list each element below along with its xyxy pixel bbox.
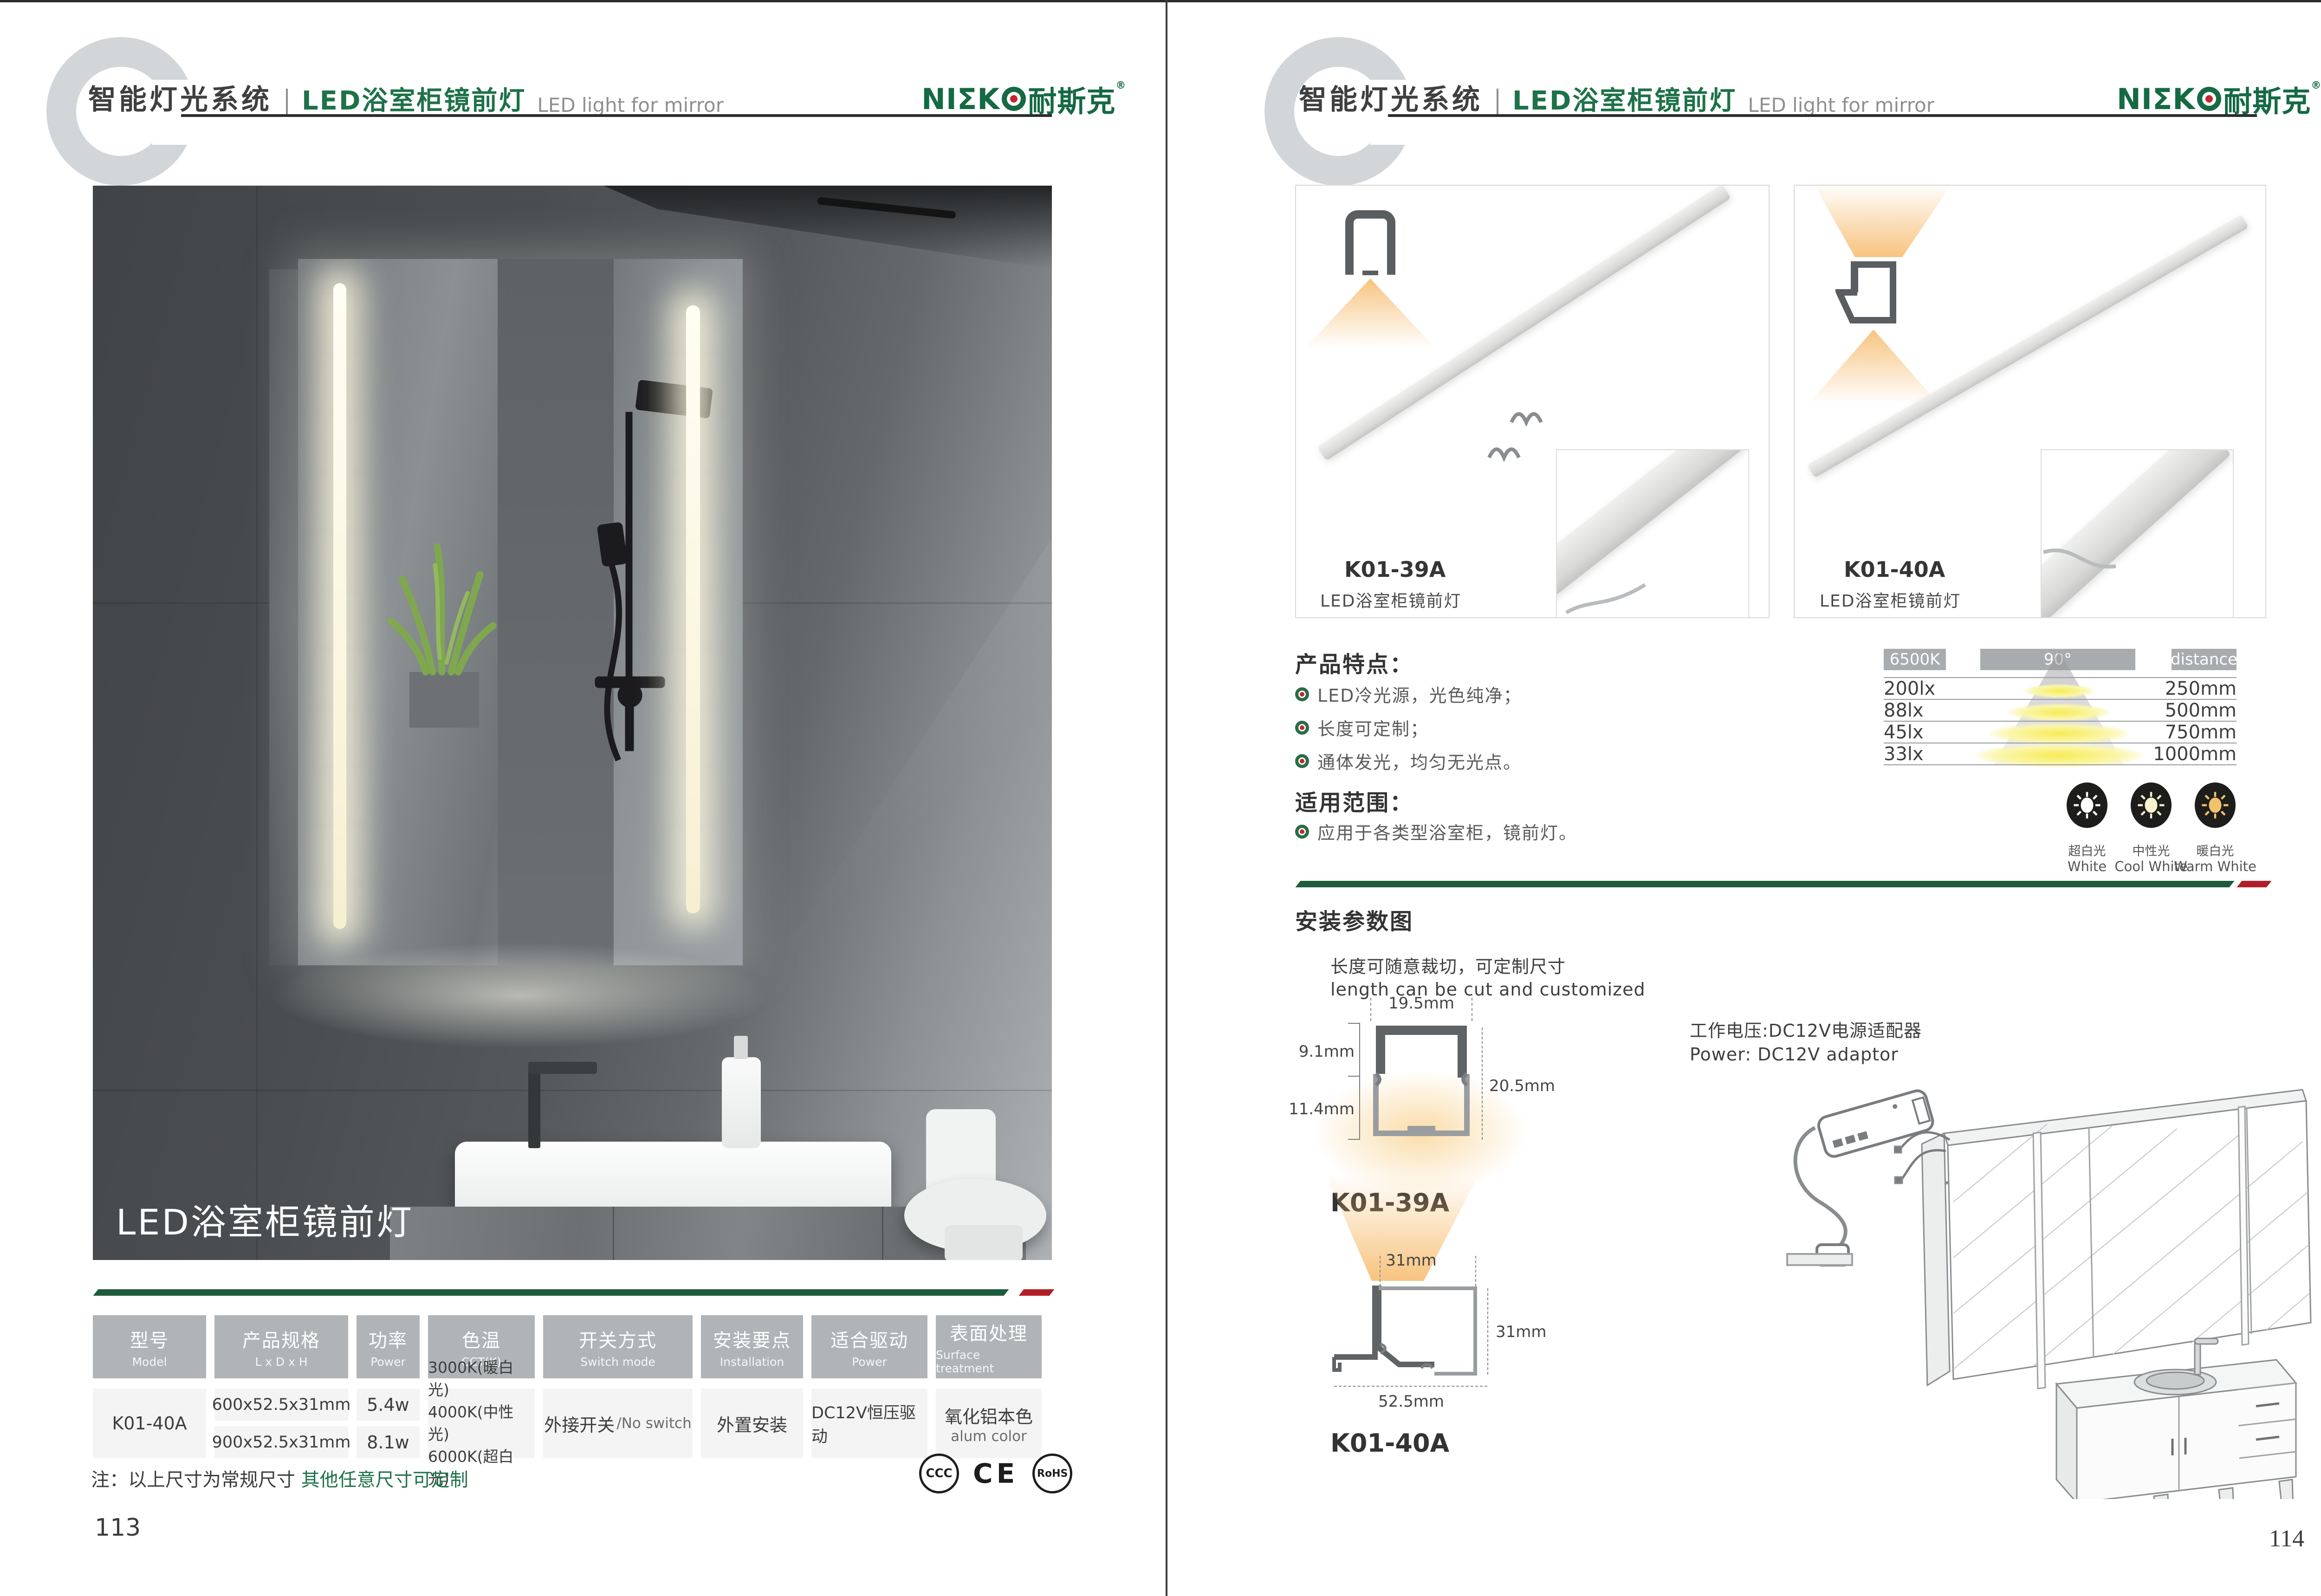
catalog-spread: 智能灯光系统 LED浴室柜镜前灯 LED light for mirror NI… xyxy=(0,0,2321,1596)
spec-value: 900x52.5x31mm xyxy=(214,1426,348,1458)
power-54: 5.4w xyxy=(367,1395,409,1415)
led-strip-right xyxy=(686,305,700,913)
dim-right: 20.5mm xyxy=(1489,1077,1555,1095)
accent-line-red xyxy=(1019,1289,1055,1296)
cell-driver: DC12V恒压驱动 xyxy=(811,1389,927,1458)
accent-line-green xyxy=(93,1289,1009,1296)
cell-switch: 外接开关 /No switch xyxy=(543,1389,693,1458)
col-header-driver: 适合驱动Power xyxy=(811,1315,927,1378)
surface-en: alum color xyxy=(951,1428,1027,1445)
nisko-logo: NIΣK 耐斯克 ® xyxy=(2117,78,2321,120)
switch-en: /No switch xyxy=(616,1415,691,1432)
dim-bottom: 52.5mm xyxy=(1365,1392,1458,1411)
header-main: 适合驱动 xyxy=(830,1325,908,1352)
cert-icons: CCC CE RoHS xyxy=(919,1454,1072,1493)
lux-label: 200lx xyxy=(1884,678,1935,699)
bullet-dot-icon xyxy=(1300,692,1304,697)
accent-line-green xyxy=(1296,881,2235,887)
page-header: 智能灯光系统 LED浴室柜镜前灯 LED light for mirror xyxy=(1299,77,1934,117)
faucet-icon xyxy=(528,1062,540,1148)
header-main: 开关方式 xyxy=(579,1325,657,1352)
features-title: 产品特点： xyxy=(1295,646,1413,678)
nisko-logo: NIΣK 耐斯克 ® xyxy=(921,78,1126,120)
dim-guide xyxy=(1348,1076,1360,1077)
dim-guide xyxy=(1482,1027,1483,1140)
col-header-switch: 开关方式Switch mode xyxy=(543,1315,693,1378)
header-sub: Installation xyxy=(720,1355,784,1369)
profile-section-icon xyxy=(1340,210,1400,279)
accent-line-red xyxy=(2237,881,2272,887)
feature-text: 长度可定制； xyxy=(1317,715,1429,740)
feature-text: LED冷光源，光色纯净； xyxy=(1317,681,1522,707)
light-glow xyxy=(1809,330,1938,404)
power-81: 8.1w xyxy=(367,1432,409,1453)
driver-value: DC12V恒压驱动 xyxy=(811,1400,927,1447)
lux-label: 45lx xyxy=(1884,722,1924,743)
top-rule xyxy=(0,0,2321,2)
power-note-cn: 工作电压:DC12V电源适配器 xyxy=(1690,1016,1922,1042)
mirror-cabinet-side xyxy=(269,269,298,965)
header-product-en: LED light for mirror xyxy=(537,94,724,116)
distance-label: 250mm xyxy=(2097,678,2237,699)
header-sub: Power xyxy=(852,1355,887,1369)
header-rule xyxy=(1388,114,2257,117)
scope-text: 应用于各类型浴室柜，镜前灯。 xyxy=(1317,819,1577,844)
cct-label-en: Warm White xyxy=(2171,859,2259,874)
header-sub: Power xyxy=(370,1355,406,1369)
profile1-section xyxy=(1370,1022,1472,1141)
soap-pump-icon xyxy=(734,1036,748,1059)
cut-note-cn: 长度可随意裁切，可定制尺寸 xyxy=(1330,952,1566,978)
nisko-logo-cn: 耐斯克 xyxy=(2223,78,2311,120)
rohs-mark-icon: RoHS xyxy=(1032,1454,1072,1493)
spec-value: 600x52.5x31mm xyxy=(214,1389,348,1421)
feature-bullet-icon xyxy=(1295,825,1309,839)
nisko-logo-left: NIΣK xyxy=(2117,82,2195,116)
dim-guide xyxy=(1370,998,1371,1021)
dim-guide xyxy=(1475,1256,1476,1286)
rohs-text: RoHS xyxy=(1037,1468,1068,1480)
cell-install: 外置安装 xyxy=(701,1389,803,1458)
lux-label: 33lx xyxy=(1884,743,1924,765)
col-header-install: 安装要点Installation xyxy=(701,1315,803,1378)
dim-guide xyxy=(1380,1256,1381,1286)
header-sub: Switch mode xyxy=(580,1355,655,1369)
header-sub: Model xyxy=(132,1355,167,1369)
distance-label: 1000mm xyxy=(2097,743,2237,765)
feature-item: 长度可定制； xyxy=(1295,715,1429,740)
dim-guide xyxy=(1472,998,1472,1021)
feature-item: 通体发光，均匀无光点。 xyxy=(1295,748,1522,774)
spec-table-data-row: K01-40A 600x52.5x31mm 900x52.5x31mm 5.4w… xyxy=(93,1389,1049,1458)
cct-cool-white-icon xyxy=(2131,782,2172,828)
product-model: K01-40A xyxy=(1844,557,1945,582)
size-note: 注：以上尺寸为常规尺寸 其他任意尺寸可定制 xyxy=(91,1465,468,1492)
feature-bullet-icon xyxy=(1295,754,1309,768)
header-sub: L x D x H xyxy=(255,1355,307,1369)
soap-bottle-icon xyxy=(722,1057,761,1148)
col-header-spec: 产品规格L x D x H xyxy=(214,1315,348,1378)
under-cabinet-glow xyxy=(269,942,771,1049)
vanity-door-seam xyxy=(613,1207,614,1260)
header-main: 安装要点 xyxy=(713,1325,791,1352)
ccc-mark-icon: CCC xyxy=(919,1454,959,1493)
registered-mark: ® xyxy=(2311,80,2321,91)
scope-item: 应用于各类型浴室柜，镜前灯。 xyxy=(1295,819,1577,844)
bullet-dot-icon xyxy=(1300,829,1304,834)
nisko-o-icon xyxy=(2197,87,2221,111)
col-header-power: 功率Power xyxy=(357,1315,420,1378)
product-card-k01-40a: K01-40A LED浴室柜镜前灯 xyxy=(1794,185,2266,618)
page-divider xyxy=(1166,0,1167,1596)
spec-900: 900x52.5x31mm xyxy=(212,1433,351,1452)
lux-label: 88lx xyxy=(1884,700,1924,721)
col-header-surface: 表面处理Surface treatment xyxy=(936,1315,1042,1378)
product-card-k01-39a: K01-39A LED浴室柜镜前灯 xyxy=(1295,185,1770,618)
vanity-drawer-seam xyxy=(882,1207,883,1260)
plant-icon xyxy=(358,519,512,732)
dim-left-lower: 11.4mm xyxy=(1279,1100,1355,1118)
scope-title: 适用范围： xyxy=(1295,784,1413,817)
spec-table-header-row: 型号Model 产品规格L x D x H 功率Power 色温CCT(K) 开… xyxy=(93,1315,1049,1378)
dim-guide xyxy=(1334,1386,1487,1387)
wall-light-streak xyxy=(752,538,1052,1002)
cct-3000: 3000K(暖白光) xyxy=(428,1357,535,1401)
dim-guide xyxy=(1348,1023,1360,1024)
tile-seam xyxy=(93,1090,1052,1091)
note-custom: 其他任意尺寸可定制 xyxy=(301,1469,468,1491)
feature-bullet-icon xyxy=(1295,687,1309,701)
dim-guide xyxy=(1487,1288,1488,1375)
chart-cct-value: 6500K xyxy=(1890,650,1940,669)
profile2-section xyxy=(1332,1279,1485,1386)
light-glow xyxy=(1813,183,1952,257)
bathroom-photo: LED浴室柜镜前灯 xyxy=(93,186,1052,1260)
light-glow xyxy=(1305,278,1435,348)
cct-4000: 4000K(中性光) xyxy=(428,1401,535,1446)
light-spot-2 xyxy=(2008,704,2110,721)
light-spot-1 xyxy=(2024,684,2094,698)
switch-cn: 外接开关 xyxy=(544,1411,615,1436)
cell-model: K01-40A xyxy=(93,1389,206,1458)
faucet-spout-icon xyxy=(528,1062,597,1074)
cct-warm-white-icon xyxy=(2195,782,2236,828)
dim-left-upper: 9.1mm xyxy=(1290,1042,1355,1061)
power-wire-icon xyxy=(2042,534,2134,589)
dim-top: 19.5mm xyxy=(1375,994,1468,1013)
distance-label: 500mm xyxy=(2097,700,2237,721)
profile2-model: K01-40A xyxy=(1330,1428,1449,1458)
spec-table: 型号Model 产品规格L x D x H 功率Power 色温CCT(K) 开… xyxy=(93,1315,1049,1458)
dim-guide xyxy=(1359,1023,1360,1140)
sun-icon xyxy=(2073,791,2101,819)
tile-seam xyxy=(256,186,258,1260)
product-model: K01-39A xyxy=(1344,557,1446,582)
toilet-base-icon xyxy=(945,1225,1023,1260)
page-number-left: 113 xyxy=(95,1514,141,1542)
header-main: 功率 xyxy=(369,1325,408,1352)
dim-top: 31mm xyxy=(1365,1251,1458,1270)
install-title: 安装参数图 xyxy=(1295,903,1413,936)
ce-mark-icon: CE xyxy=(973,1458,1018,1489)
bullet-dot-icon xyxy=(1300,759,1304,763)
dim-right: 31mm xyxy=(1496,1323,1547,1341)
chart-distance-header: distance xyxy=(2172,649,2237,670)
distance-label: 750mm xyxy=(2097,722,2237,743)
install-value: 外置安装 xyxy=(717,1411,787,1436)
mirror-cabinet xyxy=(298,259,743,965)
header-product-en: LED light for mirror xyxy=(1748,94,1934,116)
header-sub: Surface treatment xyxy=(936,1348,1042,1375)
chart-distance-label: distance xyxy=(2171,650,2237,669)
cct-label-cn: 暖白光 xyxy=(2176,841,2255,859)
header-main: 色温 xyxy=(462,1325,501,1352)
header-separator xyxy=(286,89,288,116)
detail-inset xyxy=(1556,449,1749,618)
detail-inset xyxy=(2041,449,2234,618)
header-separator xyxy=(1497,89,1498,116)
header-main: 产品规格 xyxy=(242,1325,320,1352)
spec-600: 600x52.5x31mm xyxy=(212,1396,351,1414)
cell-power: 5.4w 8.1w xyxy=(357,1389,420,1458)
header-rule xyxy=(181,114,1052,117)
cell-specs: 600x52.5x31mm 900x52.5x31mm xyxy=(214,1389,348,1458)
cell-surface: 氧化铝本色 alum color xyxy=(936,1389,1042,1458)
power-value: 5.4w xyxy=(357,1389,420,1421)
feature-item: LED冷光源，光色纯净； xyxy=(1295,681,1522,707)
page-number-right: 114 xyxy=(2269,1525,2304,1552)
header-system-title: 智能灯光系统 xyxy=(88,77,272,117)
header-product-cn: LED浴室柜镜前灯 xyxy=(1512,80,1737,117)
power-value: 8.1w xyxy=(357,1426,420,1458)
cell-cct: 3000K(暖白光) 4000K(中性光) 6000K(超白光) xyxy=(428,1389,535,1458)
profile-section-icon xyxy=(1835,255,1914,325)
header-system-title: 智能灯光系统 xyxy=(1299,77,1483,117)
feature-bullet-icon xyxy=(1295,721,1309,735)
note-prefix: 注：以上尺寸为常规尺寸 xyxy=(91,1469,301,1491)
led-strip-left xyxy=(333,283,346,929)
chart-cct-header: 6500K xyxy=(1884,649,1946,670)
cabinet-installation-illustration xyxy=(1894,1081,2321,1499)
ce-text: CE xyxy=(973,1458,1018,1489)
product-name: LED浴室柜镜前灯 xyxy=(1320,588,1462,612)
power-note-en: Power: DC12V adaptor xyxy=(1690,1044,1899,1065)
sun-icon xyxy=(2201,791,2229,819)
nisko-red-dot-icon xyxy=(2205,95,2213,103)
photo-caption: LED浴室柜镜前灯 xyxy=(116,1194,414,1245)
nisko-logo-left: NIΣK xyxy=(921,82,1000,116)
nisko-red-dot-icon xyxy=(1010,95,1018,103)
nisko-logo-cn: 耐斯克 xyxy=(1028,78,1115,120)
feature-text: 通体发光，均匀无光点。 xyxy=(1317,748,1522,774)
dim-guide xyxy=(1348,1139,1360,1140)
registered-mark: ® xyxy=(1115,80,1126,91)
nisko-o-icon xyxy=(1002,87,1026,111)
col-header-model: 型号Model xyxy=(93,1315,206,1378)
surface-cn: 氧化铝本色 xyxy=(945,1402,1033,1428)
mounting-clips-icon xyxy=(1482,404,1556,473)
page-header: 智能灯光系统 LED浴室柜镜前灯 LED light for mirror xyxy=(88,77,724,117)
model-value: K01-40A xyxy=(112,1413,187,1434)
header-main: 表面处理 xyxy=(950,1318,1028,1345)
ccc-text: CCC xyxy=(926,1467,952,1480)
power-wire-icon xyxy=(1562,566,1654,617)
bullet-dot-icon xyxy=(1300,725,1304,730)
sun-icon xyxy=(2137,791,2165,819)
cct-white-icon xyxy=(2067,782,2107,828)
product-name: LED浴室柜镜前灯 xyxy=(1820,588,1961,612)
header-product-cn: LED浴室柜镜前灯 xyxy=(302,80,526,117)
header-main: 型号 xyxy=(130,1325,169,1352)
